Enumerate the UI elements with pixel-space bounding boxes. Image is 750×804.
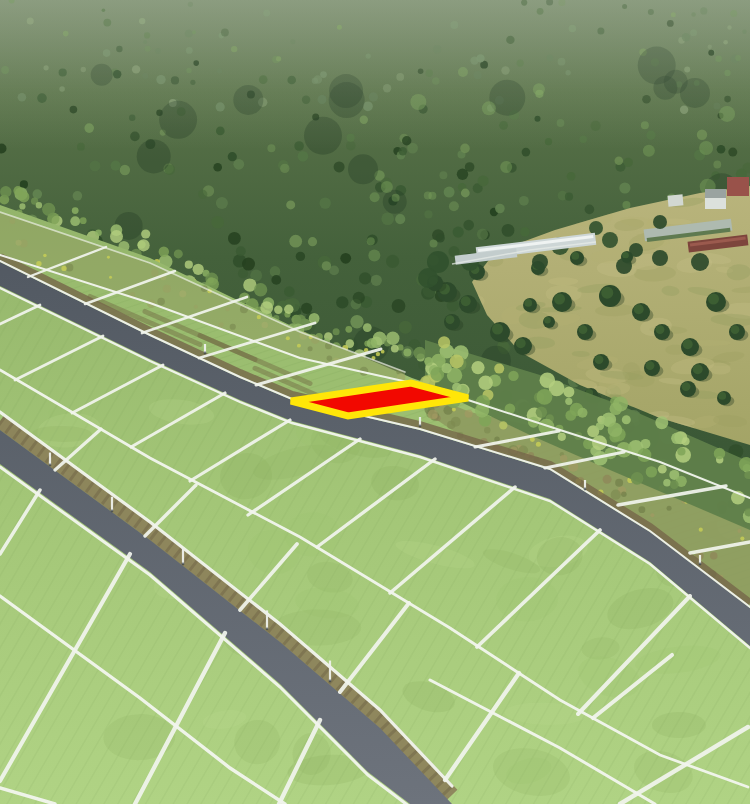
red-roof-house	[727, 177, 749, 196]
aerial-photo-stage	[0, 0, 750, 804]
haze-overlay	[0, 0, 750, 150]
small-shed	[668, 194, 684, 206]
aerial-photo	[0, 0, 750, 804]
